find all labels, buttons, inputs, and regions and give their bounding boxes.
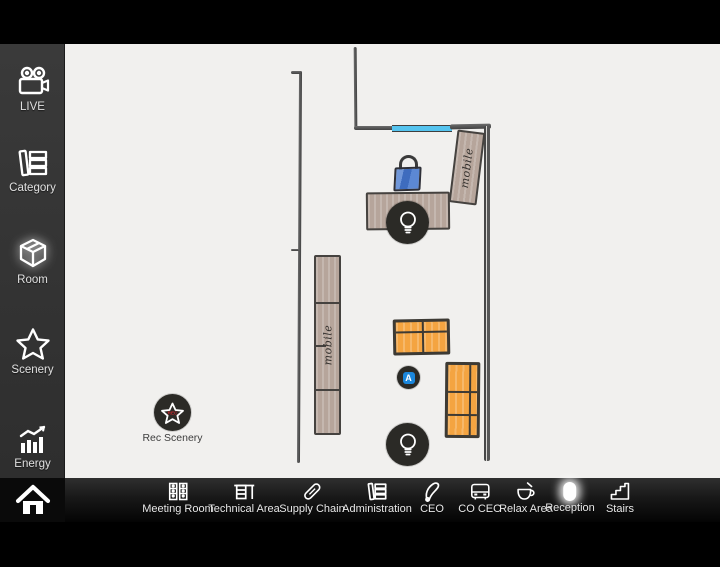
co-ceo-icon [468, 481, 492, 502]
bar-item-administration[interactable]: Administration [342, 481, 412, 515]
sidebar-item-scenery[interactable]: Scenery [0, 327, 65, 376]
ceo-icon [421, 481, 443, 502]
supply-chain-icon [300, 481, 324, 502]
bar-item-supply-chain[interactable]: Supply Chain [279, 481, 344, 515]
wall-top-left-segment [354, 126, 394, 130]
desk-chair [393, 167, 421, 192]
bar-item-ceo[interactable]: CEO [420, 481, 444, 515]
sidebar-item-label: LIVE [0, 101, 65, 113]
scenery-star-icon [15, 327, 51, 361]
cabinet-label: mobile [321, 325, 334, 366]
sidebar-item-label: Scenery [0, 364, 65, 376]
video-camera-icon [15, 66, 51, 98]
technical-area-icon [232, 481, 256, 502]
sidebar-item-label: Energy [0, 458, 65, 470]
cabinet-label: mobile [458, 147, 476, 189]
table-orange-vertical [445, 362, 481, 438]
wall-mid-vertical [354, 47, 358, 129]
bar-item-label: CEO [420, 503, 444, 515]
cabinet-divider [316, 389, 339, 391]
sidebar-item-label: Room [0, 274, 65, 286]
administration-icon [365, 481, 389, 502]
stairs-icon [608, 481, 632, 502]
automation-badge: A [403, 372, 415, 384]
window [392, 125, 452, 132]
wall-right [484, 126, 490, 461]
bar-item-co-ceo[interactable]: CO CEO [458, 481, 501, 515]
floorplan-canvas[interactable]: mobile mobile A [65, 44, 720, 478]
bar-item-label: CO CEO [458, 503, 501, 515]
wall-left-hook [291, 71, 301, 74]
svg-text:REC: REC [168, 410, 178, 415]
bar-item-technical-area[interactable]: Technical Area [208, 481, 280, 515]
wall-left [297, 71, 302, 463]
lightbulb-icon [396, 210, 420, 236]
reception-icon [563, 482, 576, 501]
cabinet-mobile-left: mobile [314, 255, 341, 435]
home-button[interactable] [0, 478, 65, 522]
bar-item-stairs[interactable]: Stairs [606, 481, 634, 515]
home-icon [14, 483, 52, 517]
app-screen: mobile mobile A [0, 0, 720, 567]
relax-area-icon [514, 481, 538, 502]
bar-item-label: Meeting Room [142, 503, 214, 515]
room-cube-icon [15, 237, 51, 271]
sidebar-item-live[interactable]: LIVE [0, 66, 65, 113]
sidebar: LIVE Category Room Scenery [0, 44, 65, 478]
star-icon: REC [161, 402, 184, 424]
cabinet-mobile-top-right: mobile [449, 130, 486, 206]
bar-item-reception[interactable]: Reception [545, 481, 595, 514]
bar-item-label: Stairs [606, 503, 634, 515]
room-selector-bar: Meeting Room Technical Area Supply Chain [65, 478, 720, 522]
lightbulb-icon [396, 432, 420, 458]
sidebar-item-category[interactable]: Category [0, 147, 65, 194]
rec-scenery-marker[interactable]: REC [154, 394, 191, 431]
sidebar-item-label: Category [0, 182, 65, 194]
bar-item-label: Reception [545, 502, 595, 514]
bar-item-label: Technical Area [208, 503, 280, 515]
wall-left-tick [291, 249, 299, 251]
category-books-icon [16, 147, 50, 179]
rec-scenery-label: Rec Scenery [124, 432, 221, 444]
bar-item-label: Administration [342, 503, 412, 515]
automation-marker[interactable]: A [397, 366, 420, 389]
bar-item-label: Supply Chain [279, 503, 344, 515]
light-marker-top[interactable] [386, 201, 429, 244]
energy-chart-icon [15, 423, 51, 455]
cabinet-divider [316, 302, 339, 304]
sidebar-item-energy[interactable]: Energy [0, 423, 65, 470]
sidebar-item-room[interactable]: Room [0, 237, 65, 286]
table-orange-horizontal [393, 319, 451, 356]
meeting-room-icon [166, 481, 190, 502]
light-marker-bottom[interactable] [386, 423, 429, 466]
bar-item-meeting-room[interactable]: Meeting Room [142, 481, 214, 515]
